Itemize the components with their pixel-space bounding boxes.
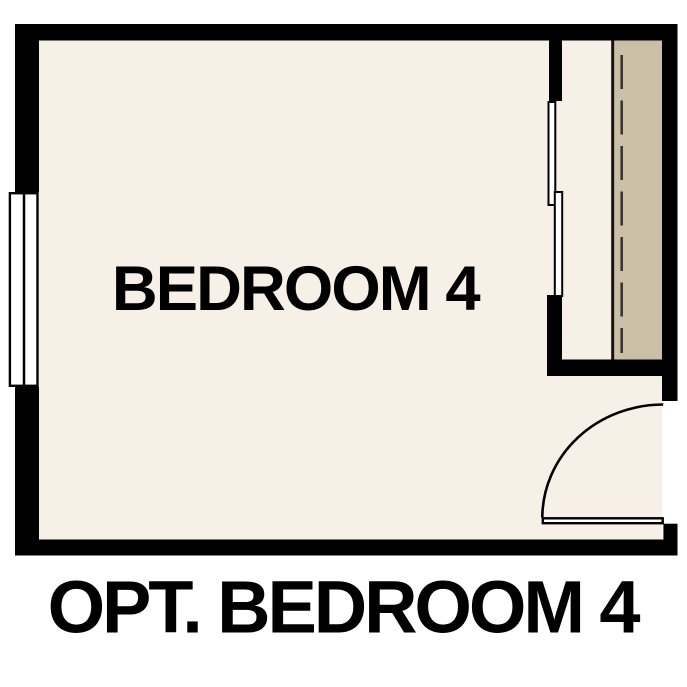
svg-text:BEDROOM 4: BEDROOM 4 <box>112 254 480 324</box>
svg-text:OPT. BEDROOM 4: OPT. BEDROOM 4 <box>48 565 641 648</box>
